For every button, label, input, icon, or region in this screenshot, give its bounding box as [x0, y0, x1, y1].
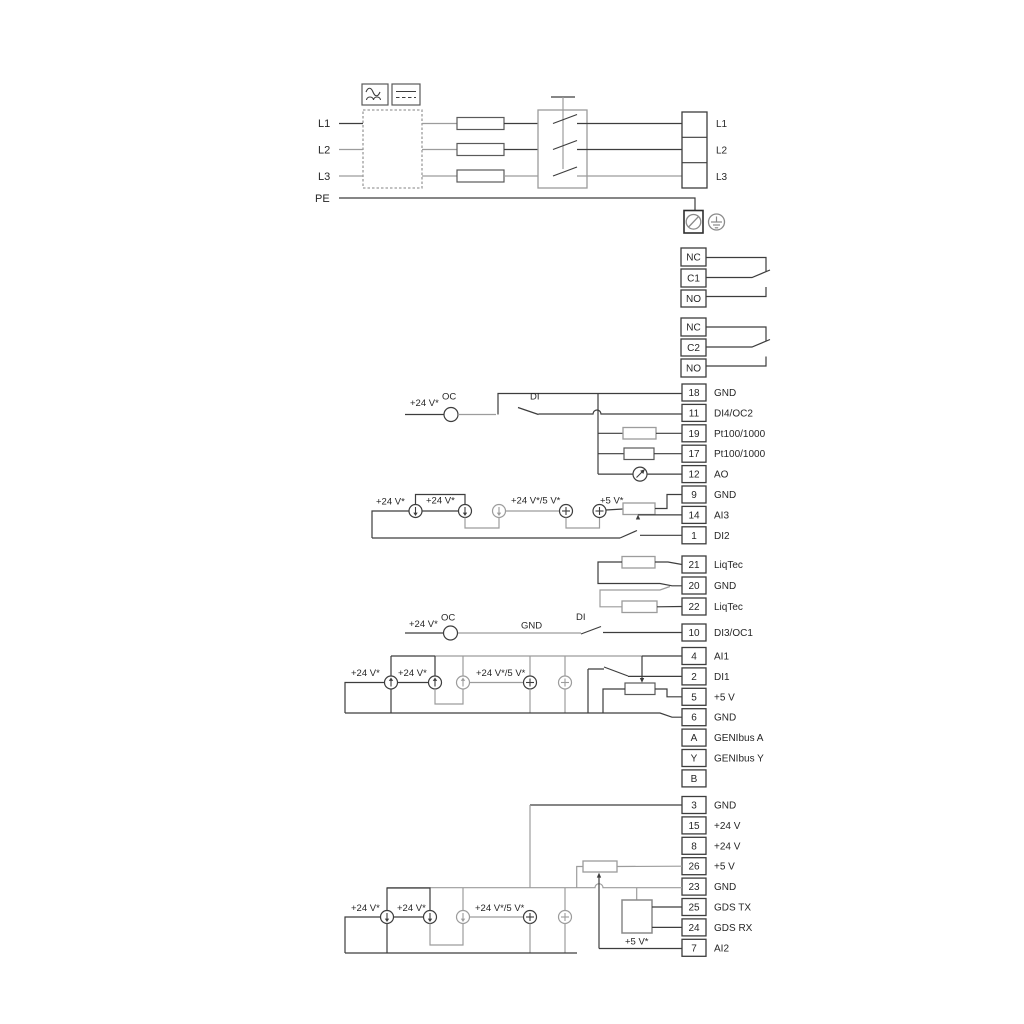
mains-terminal-block	[682, 112, 707, 188]
terminal-b-number: B	[691, 774, 698, 785]
ai1-potentiometer	[625, 683, 655, 695]
voltage-source-icon	[560, 505, 573, 518]
terminal-9-number: 9	[691, 490, 697, 501]
voltage-source-icon	[559, 911, 572, 924]
input-l1-label: L1	[318, 118, 330, 130]
wiring-diagram: L1 L2 L3 PE	[0, 0, 1024, 1024]
terminal-2-number: 2	[691, 672, 697, 683]
terminal-2-label: DI1	[714, 672, 730, 683]
plus24or5-label: +24 V*/5 V*	[476, 668, 526, 679]
relay1-nc-label: NC	[686, 253, 700, 264]
terminal-24-label: GDS RX	[714, 923, 753, 934]
terminal-a-number: A	[691, 733, 698, 744]
plus24or5-label: +24 V*/5 V*	[511, 496, 561, 507]
current-source-icon	[409, 505, 422, 518]
voltage-source-icon	[559, 676, 572, 689]
ai2-sensor-circuit: +24 V* +24 V* +24 V*/5 V* +5 V*	[345, 805, 682, 953]
oc-output-circle	[444, 626, 458, 640]
terminal-6-label: GND	[714, 713, 736, 724]
terminal-y-label: GENIbus Y	[714, 754, 764, 765]
gnd-label: GND	[521, 621, 542, 632]
terminal-4-label: AI1	[714, 652, 729, 663]
terminal-7-label: AI2	[714, 943, 729, 954]
terminal-24-number: 24	[688, 923, 700, 934]
pt100-sensor-2	[598, 448, 682, 460]
terminal-19-number: 19	[688, 429, 700, 440]
plus24-label: +24 V*	[351, 668, 380, 679]
main-disconnect-switch	[538, 97, 587, 188]
input-l2-label: L2	[318, 145, 330, 157]
terminal-18-label: GND	[714, 388, 736, 399]
terminal-11-label: DI4/OC2	[714, 408, 753, 419]
earth-ground-icon	[709, 214, 725, 230]
terminal-14-label: AI3	[714, 510, 729, 521]
terminal-7-number: 7	[691, 943, 697, 954]
terminal-20-number: 20	[688, 581, 700, 592]
terminal-4-number: 4	[691, 652, 697, 663]
terminal-26-number: 26	[688, 862, 700, 873]
oc-output-circle	[444, 408, 458, 422]
terminal-18-number: 18	[688, 388, 700, 399]
liqtec-sensor-2	[600, 587, 682, 613]
gds-sensor-box	[622, 900, 652, 933]
terminal-22-number: 22	[688, 602, 700, 613]
terminal-15-number: 15	[688, 821, 700, 832]
io-strip-3: 3 15 8 26 23 25 24 7 GND +24 V +24 V +5 …	[682, 797, 753, 957]
current-source-icon	[457, 911, 470, 924]
terminal-23-number: 23	[688, 882, 700, 893]
voltage-source-icon	[524, 676, 537, 689]
terminal-23-label: GND	[714, 882, 736, 893]
fuse-l1	[457, 118, 504, 130]
terminal-15-label: +24 V	[714, 821, 741, 832]
di3-switch	[581, 627, 601, 635]
wiper-arrow-icon	[597, 873, 601, 878]
current-source-icon	[429, 676, 442, 689]
current-source-icon	[381, 911, 394, 924]
terminal-11-number: 11	[689, 408, 700, 419]
terminal-21-number: 21	[688, 560, 700, 571]
pe-wire	[339, 198, 695, 210]
relay1-no-label: NO	[686, 294, 701, 305]
terminal-17-number: 17	[688, 449, 700, 460]
di1-switch	[604, 667, 628, 676]
plus24-label: +24 V*	[398, 668, 427, 679]
ac-symbol-icon	[362, 84, 388, 105]
terminal-25-number: 25	[688, 903, 700, 914]
terminal-12-label: AO	[714, 470, 729, 481]
di2-switch	[620, 531, 637, 539]
terminal-3-number: 3	[691, 801, 697, 812]
relay2-nc-label: NC	[686, 323, 700, 334]
io-strip-1: 18 11 19 17 12 9 14 1 GND DI4/OC2 Pt100/…	[682, 384, 766, 544]
relay2-contact	[706, 327, 770, 366]
current-source-icon	[459, 505, 472, 518]
plus5-label: +5 V*	[600, 496, 624, 507]
terminal-y-number: Y	[691, 754, 698, 765]
plus24-label: +24 V*	[376, 497, 405, 508]
current-source-icon	[385, 676, 398, 689]
plus24-label: +24 V*	[397, 903, 426, 914]
relay2-c2-label: C2	[687, 343, 700, 354]
liqtec-strip: 21 20 22 LiqTec GND LiqTec	[598, 556, 743, 615]
pt100-resistor-2	[624, 448, 654, 460]
terminal-20-label: GND	[714, 581, 736, 592]
relay2-block: NC C2 NO	[681, 318, 770, 377]
ai2-potentiometer	[583, 861, 617, 872]
plus24-label: +24 V*	[410, 398, 439, 409]
plus24-label: +24 V*	[409, 619, 438, 630]
pe-label: PE	[315, 193, 330, 205]
plus24-label: +24 V*	[351, 903, 380, 914]
relay1-block: NC C1 NO	[681, 248, 770, 307]
current-source-icon	[424, 911, 437, 924]
terminal-5-label: +5 V	[714, 692, 735, 703]
pt100-sensor-1	[598, 428, 682, 440]
terminal-10-number: 10	[688, 628, 700, 639]
plus24-label: +24 V*	[426, 496, 455, 507]
liqtec-sensor-1	[598, 557, 682, 586]
voltage-source-icon	[524, 911, 537, 924]
terminal-3-label: GND	[714, 801, 736, 812]
relay1-c1-label: C1	[687, 274, 700, 285]
terminal-9-label: GND	[714, 490, 736, 501]
wiper-arrow-icon	[640, 678, 644, 683]
switch-to-terminal-wires	[577, 124, 682, 177]
di-label: DI	[530, 392, 540, 403]
input-l3-label: L3	[318, 171, 330, 183]
terminal-26-label: +5 V	[714, 862, 735, 873]
io-strip-2: 4 2 5 6 A Y B AI1 DI1 +5 V GND GENIbus A…	[682, 648, 764, 787]
ai3-potentiometer	[623, 503, 655, 515]
terminal-25-label: GDS TX	[714, 903, 751, 914]
output-l3-label: L3	[716, 172, 728, 183]
plus5-label: +5 V*	[625, 937, 649, 948]
ai1-sensor-circuit: +24 V* +24 V* +24 V*/5 V*	[345, 656, 682, 717]
plus24or5-label: +24 V*/5 V*	[475, 903, 525, 914]
terminal-12-number: 12	[688, 470, 700, 481]
terminal-6-number: 6	[691, 713, 697, 724]
fuse-l2	[457, 144, 504, 156]
di-label: DI	[576, 612, 586, 623]
output-l2-label: L2	[716, 146, 728, 157]
pt100-resistor-1	[623, 428, 656, 440]
relay2-no-label: NO	[686, 364, 701, 375]
current-source-icon	[493, 505, 506, 518]
wiring-diagram-page: L1 L2 L3 PE	[0, 0, 1024, 1024]
terminal-8-label: +24 V	[714, 841, 741, 852]
voltage-source-icon	[593, 505, 606, 518]
terminal-21-label: LiqTec	[714, 560, 743, 571]
terminal-19-label: Pt100/1000	[714, 429, 766, 440]
relay1-contact	[706, 258, 770, 297]
di1-switch-feed	[588, 669, 604, 713]
pe-screw-terminal	[684, 211, 703, 234]
terminal-1-number: 1	[691, 531, 697, 542]
terminal-a-label: GENIbus A	[714, 733, 764, 744]
terminal-5-number: 5	[691, 692, 697, 703]
power-section: L1 L2 L3 PE	[315, 84, 728, 233]
oc-label: OC	[442, 392, 456, 403]
current-source-icon	[457, 676, 470, 689]
dc-symbol-icon	[392, 84, 420, 105]
converter-box	[363, 110, 422, 188]
fuse-l3	[457, 170, 504, 182]
output-l1-label: L1	[716, 119, 728, 130]
terminal-17-label: Pt100/1000	[714, 449, 766, 460]
di4-switch	[518, 408, 539, 415]
terminal-14-number: 14	[688, 510, 700, 521]
ai3-sensor-circuit: +24 V* +24 V* +24 V*/5 V* +5 V*	[372, 495, 682, 539]
terminal-8-number: 8	[691, 841, 697, 852]
terminal-1-label: DI2	[714, 531, 730, 542]
oc-label: OC	[441, 613, 455, 624]
terminal-22-label: LiqTec	[714, 602, 743, 613]
di3-oc1-circuit: 10 DI3/OC1 +24 V* OC GND DI	[405, 612, 753, 641]
terminal-10-label: DI3/OC1	[714, 628, 753, 639]
analog-output-meter	[598, 467, 682, 481]
